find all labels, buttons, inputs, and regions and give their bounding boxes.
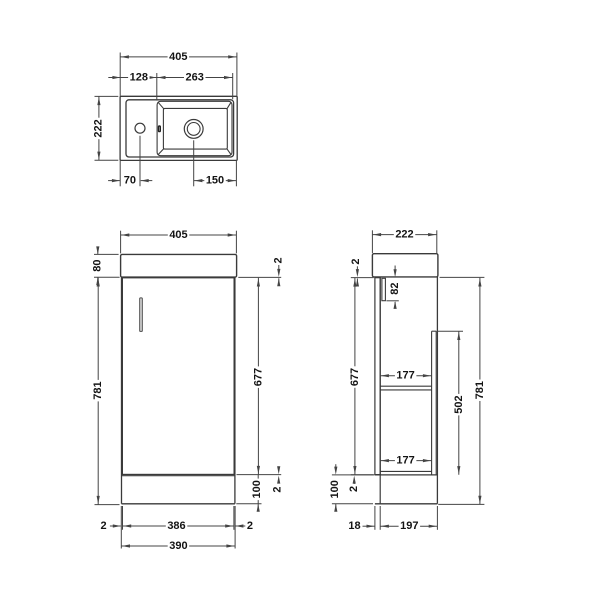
svg-text:150: 150: [206, 175, 224, 187]
svg-text:177: 177: [396, 370, 414, 382]
svg-text:128: 128: [130, 72, 148, 84]
svg-text:781: 781: [92, 381, 104, 399]
svg-text:781: 781: [474, 381, 486, 399]
svg-text:100: 100: [329, 480, 341, 498]
svg-text:18: 18: [348, 520, 360, 532]
svg-text:222: 222: [93, 119, 105, 137]
svg-text:390: 390: [169, 540, 187, 552]
svg-text:2: 2: [273, 257, 285, 263]
svg-text:2: 2: [271, 486, 283, 492]
svg-text:405: 405: [169, 229, 187, 241]
svg-text:100: 100: [251, 480, 263, 498]
svg-text:80: 80: [91, 259, 103, 271]
svg-text:677: 677: [252, 368, 264, 386]
svg-text:177: 177: [396, 455, 414, 467]
svg-text:222: 222: [395, 229, 413, 241]
svg-text:405: 405: [169, 51, 187, 63]
svg-text:386: 386: [167, 520, 185, 532]
svg-text:197: 197: [400, 520, 418, 532]
svg-text:2: 2: [348, 486, 360, 492]
svg-text:2: 2: [350, 259, 362, 265]
svg-text:70: 70: [124, 175, 136, 187]
svg-text:2: 2: [247, 520, 253, 532]
svg-text:263: 263: [186, 72, 204, 84]
svg-text:502: 502: [453, 395, 465, 413]
svg-text:82: 82: [389, 282, 401, 294]
svg-text:2: 2: [100, 520, 106, 532]
svg-text:677: 677: [349, 368, 361, 386]
